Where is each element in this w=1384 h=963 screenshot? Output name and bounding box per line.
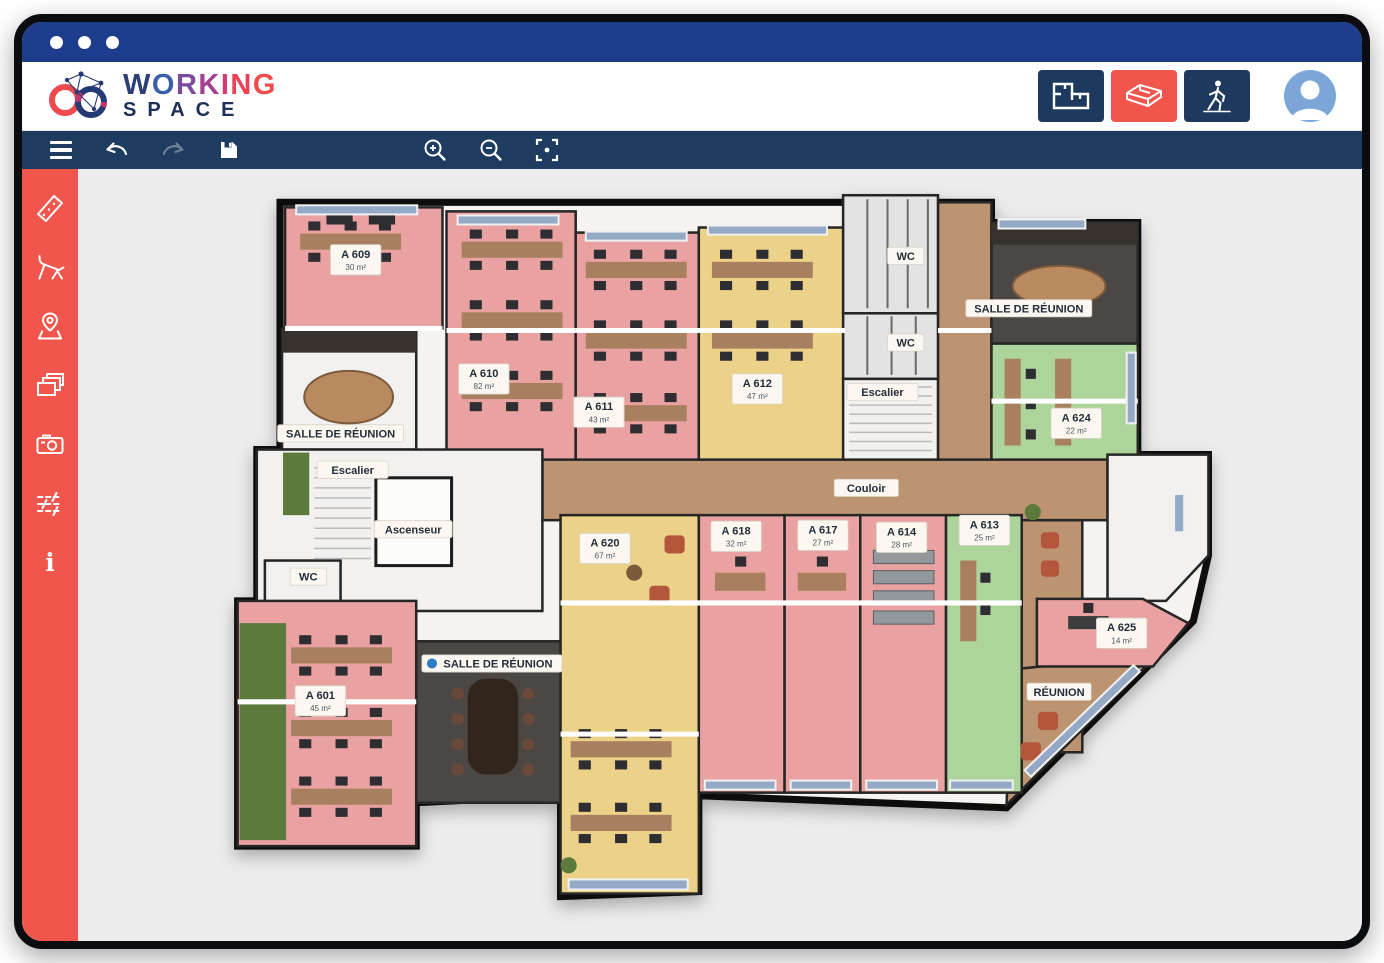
svg-text:A 625: A 625 <box>1107 622 1136 634</box>
room-label-wc-mid: WC <box>888 334 924 351</box>
app-window: WORKING SPACE <box>14 14 1370 949</box>
svg-text:A 614: A 614 <box>887 526 917 538</box>
brand-working: WORKING <box>123 71 277 101</box>
room-label-salle-reunion-ne: SALLE DE RÉUNION <box>966 300 1092 317</box>
room-label-salle-reunion-nw: SALLE DE RÉUNION <box>278 425 404 442</box>
camera-icon <box>35 429 65 459</box>
svg-text:Ascenseur: Ascenseur <box>385 524 442 536</box>
fit-view-button[interactable] <box>532 135 562 165</box>
room-label-a614: A 61428 m² <box>876 522 926 552</box>
garden-strip <box>240 623 286 840</box>
svg-text:47 m²: 47 m² <box>747 392 768 401</box>
room-label-wc-top: WC <box>888 247 924 264</box>
window-control-dot[interactable] <box>50 36 63 49</box>
svg-text:25 m²: 25 m² <box>974 533 995 542</box>
room-label-a611: A 61143 m² <box>574 397 624 427</box>
room-label-a609: A 60930 m² <box>330 245 380 275</box>
svg-text:A 611: A 611 <box>585 401 614 413</box>
svg-text:RÉUNION: RÉUNION <box>1033 686 1084 699</box>
menu-button[interactable] <box>46 135 76 165</box>
room-label-a610: A 61082 m² <box>459 364 509 394</box>
avatar-person-icon <box>1284 70 1336 122</box>
svg-text:A 620: A 620 <box>590 537 619 549</box>
brand-space: SPACE <box>123 100 277 121</box>
zoom-out-button[interactable] <box>476 135 506 165</box>
zoom-out-icon <box>478 137 504 163</box>
floorplan-canvas[interactable]: A 60930 m²A 61082 m²SALLE DE RÉUNIONA 61… <box>78 169 1362 941</box>
room-label-escalier-center: Escalier <box>847 383 918 400</box>
svg-text:A 601: A 601 <box>306 690 335 702</box>
tools-sidebar: i <box>22 169 78 941</box>
undo-arrow-icon <box>104 140 130 160</box>
svg-text:SALLE DE RÉUNION: SALLE DE RÉUNION <box>974 302 1083 315</box>
svg-text:82 m²: 82 m² <box>474 382 495 391</box>
room-label-a613: A 61325 m² <box>959 515 1009 545</box>
svg-text:Couloir: Couloir <box>847 483 887 495</box>
svg-text:30 m²: 30 m² <box>345 263 366 272</box>
map-pin-icon <box>35 311 65 341</box>
sidebar-item-measure[interactable] <box>33 191 67 225</box>
hamburger-menu-icon <box>50 141 72 159</box>
room-label-salle-reunion-s: SALLE DE RÉUNION <box>422 655 562 672</box>
room-a613[interactable] <box>946 515 1022 793</box>
2d-floorplan-icon <box>1052 82 1090 110</box>
view-mode-2d[interactable] <box>1038 70 1104 122</box>
sidebar-item-furniture[interactable] <box>33 250 67 284</box>
window-control-dot[interactable] <box>106 36 119 49</box>
window-control-dot[interactable] <box>78 36 91 49</box>
svg-text:14 m²: 14 m² <box>1111 636 1132 645</box>
blue-pin-icon <box>427 658 437 668</box>
svg-text:28 m²: 28 m² <box>891 540 912 549</box>
room-label-wc-west: WC <box>290 568 326 585</box>
walkthrough-person-icon <box>1202 79 1232 113</box>
coworking-logo-icon <box>48 69 110 123</box>
brand-text: WORKING SPACE <box>123 71 277 122</box>
room-label-a601: A 60145 m² <box>295 686 345 716</box>
svg-text:A 624: A 624 <box>1062 412 1092 424</box>
svg-text:A 613: A 613 <box>970 519 999 531</box>
window-titlebar <box>22 22 1362 62</box>
user-avatar[interactable] <box>1284 70 1336 122</box>
floorplan-building: A 60930 m²A 61082 m²SALLE DE RÉUNIONA 61… <box>238 195 1209 896</box>
room-label-a625: A 62514 m² <box>1096 618 1146 648</box>
svg-text:A 610: A 610 <box>469 368 498 380</box>
room-couloir[interactable] <box>542 455 1107 521</box>
svg-text:i: i <box>45 548 55 577</box>
save-floppy-icon <box>218 139 240 161</box>
zoom-in-button[interactable] <box>420 135 450 165</box>
svg-text:67 m²: 67 m² <box>595 552 616 561</box>
room-label-escalier-west: Escalier <box>317 461 388 478</box>
svg-text:SALLE DE RÉUNION: SALLE DE RÉUNION <box>286 427 395 440</box>
brand-logo: WORKING SPACE <box>48 69 277 123</box>
sidebar-item-floors[interactable] <box>33 368 67 402</box>
zoom-controls <box>420 135 562 165</box>
svg-text:27 m²: 27 m² <box>813 538 834 547</box>
app-header: WORKING SPACE <box>22 62 1362 131</box>
svg-text:WC: WC <box>299 572 317 584</box>
svg-text:A 609: A 609 <box>341 249 370 261</box>
svg-text:A 618: A 618 <box>722 525 751 537</box>
chair-icon <box>35 252 65 282</box>
svg-text:32 m²: 32 m² <box>726 539 747 548</box>
svg-text:Escalier: Escalier <box>861 387 904 399</box>
view-mode-switcher <box>1038 70 1250 122</box>
sidebar-item-location[interactable] <box>33 309 67 343</box>
room-label-reunion: RÉUNION <box>1027 683 1091 700</box>
redo-arrow-icon <box>160 140 186 160</box>
moss-wall <box>283 453 309 516</box>
ruler-icon <box>35 193 65 223</box>
undo-button[interactable] <box>102 135 132 165</box>
editor-toolbar <box>22 131 1362 169</box>
sidebar-item-snapshot[interactable] <box>33 427 67 461</box>
save-button[interactable] <box>214 135 244 165</box>
fit-to-screen-icon <box>534 137 560 163</box>
app-window-frame: WORKING SPACE <box>14 14 1370 949</box>
svg-text:43 m²: 43 m² <box>589 415 610 424</box>
room-label-a624: A 62422 m² <box>1051 408 1101 438</box>
svg-text:A 612: A 612 <box>743 378 772 390</box>
svg-text:45 m²: 45 m² <box>310 704 331 713</box>
room-label-a612: A 61247 m² <box>732 374 782 404</box>
sidebar-item-adjustments[interactable] <box>33 486 67 520</box>
room-label-couloir: Couloir <box>834 479 898 496</box>
layers-icon <box>35 370 65 400</box>
svg-text:A 617: A 617 <box>808 524 837 536</box>
svg-text:22 m²: 22 m² <box>1066 426 1087 435</box>
info-icon: i <box>35 547 65 577</box>
room-label-a617: A 61727 m² <box>798 520 848 550</box>
room-label-a618: A 61832 m² <box>711 521 761 551</box>
floorplan-3d-view[interactable]: A 60930 m²A 61082 m²SALLE DE RÉUNIONA 61… <box>78 169 1362 941</box>
svg-text:SALLE DE RÉUNION: SALLE DE RÉUNION <box>443 658 552 671</box>
room-label-a620: A 62067 m² <box>580 533 630 563</box>
room-label-ascenseur: Ascenseur <box>374 521 452 538</box>
svg-text:WC: WC <box>896 338 914 350</box>
zoom-in-icon <box>422 137 448 163</box>
view-mode-walkthrough[interactable] <box>1184 70 1250 122</box>
redo-button[interactable] <box>158 135 188 165</box>
svg-text:Escalier: Escalier <box>331 465 374 477</box>
3d-view-icon <box>1123 80 1165 112</box>
sliders-icon <box>35 488 65 518</box>
sidebar-item-info[interactable]: i <box>33 545 67 579</box>
view-mode-3d[interactable] <box>1111 70 1177 122</box>
svg-text:WC: WC <box>896 251 914 263</box>
